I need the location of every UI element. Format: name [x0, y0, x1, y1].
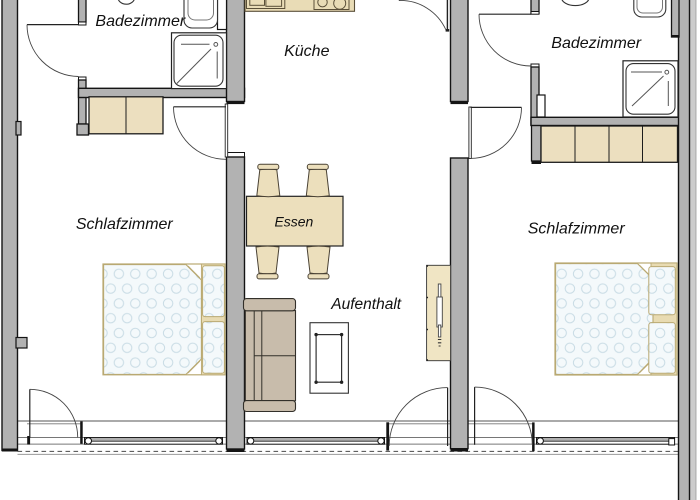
svg-text:Essen: Essen: [274, 214, 313, 230]
svg-text:Küche: Küche: [284, 43, 329, 60]
svg-text:Schlafzimmer: Schlafzimmer: [528, 220, 626, 237]
svg-text:Badezimmer: Badezimmer: [95, 13, 185, 30]
svg-text:Badezimmer: Badezimmer: [551, 35, 641, 52]
svg-text:Schlafzimmer: Schlafzimmer: [76, 216, 174, 233]
svg-text:Aufenthalt: Aufenthalt: [330, 296, 401, 313]
